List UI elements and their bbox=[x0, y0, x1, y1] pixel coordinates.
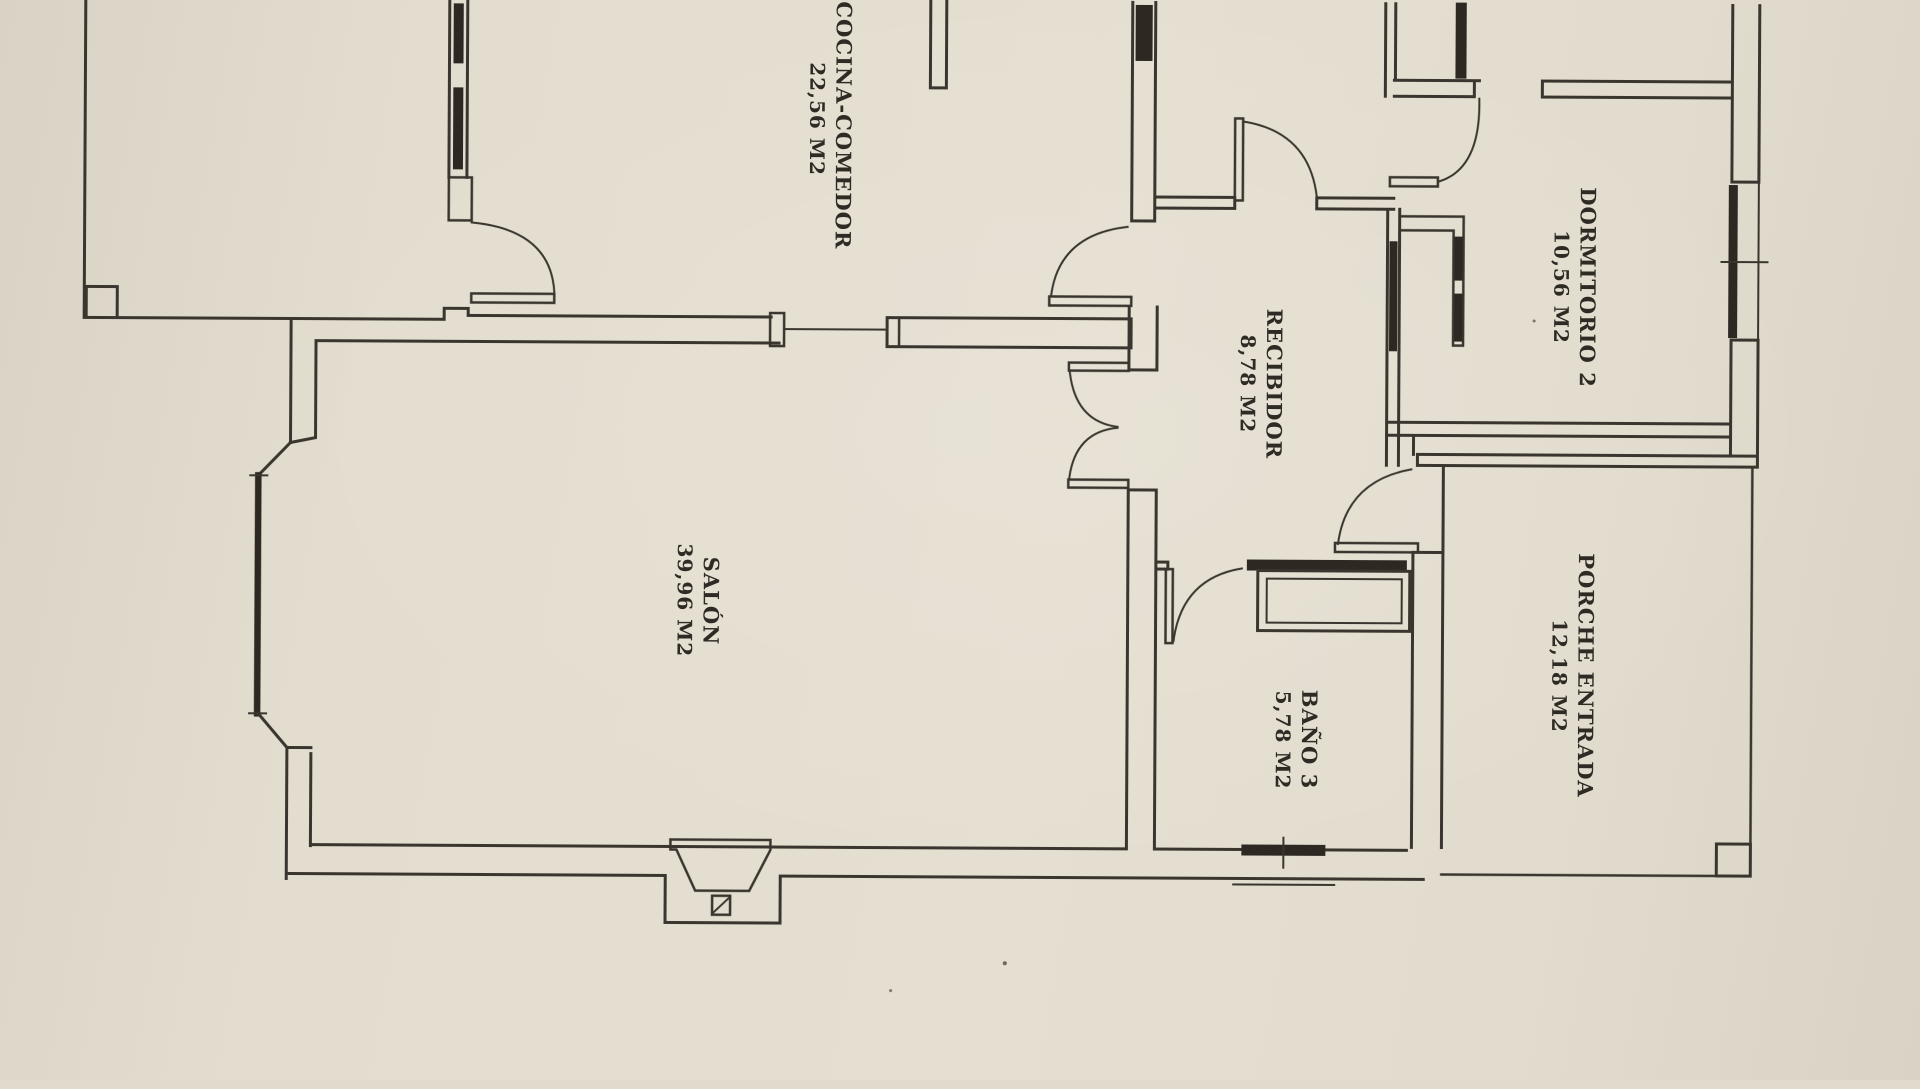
door-leaf bbox=[1390, 177, 1438, 186]
door-leaf bbox=[1235, 118, 1243, 200]
closet-bar bbox=[1454, 237, 1462, 281]
salon-top-wall bbox=[784, 317, 1131, 348]
kitchen-walls bbox=[83, 0, 785, 478]
drain-square-diagonal bbox=[712, 897, 730, 914]
scan-speck bbox=[1003, 961, 1007, 965]
scan-speck bbox=[1533, 319, 1536, 322]
door-swing-arc bbox=[1439, 99, 1480, 182]
room-name: DORMITORIO 2 bbox=[1574, 179, 1602, 395]
salon-bay-window bbox=[248, 475, 312, 878]
wall-footing-square bbox=[1716, 844, 1750, 876]
door-leaf bbox=[1049, 296, 1131, 305]
room-name: BAÑO 3 bbox=[1296, 674, 1324, 806]
window-bar bbox=[453, 87, 463, 169]
door-leaf bbox=[1068, 480, 1128, 488]
recibidor-top-wall bbox=[1155, 118, 1394, 209]
right-outer-wall bbox=[1720, 4, 1768, 467]
center-wall bbox=[1046, 0, 1158, 846]
top-wall-stub bbox=[930, 0, 946, 88]
room-area: 22,56 M2 bbox=[803, 1, 831, 237]
room-area: 8,78 M2 bbox=[1233, 307, 1261, 459]
door-swing-arc bbox=[471, 222, 554, 291]
room-label-porche-entrada: PORCHE ENTRADA 12,18 M2 bbox=[1545, 553, 1600, 798]
door-swing-arc bbox=[1338, 469, 1411, 544]
window-bar bbox=[1389, 241, 1398, 351]
room-label-dormitorio-2: DORMITORIO 2 10,56 M2 bbox=[1547, 179, 1602, 395]
closet bbox=[1399, 216, 1464, 345]
floor-plan: COCINA-COMEDOR 22,56 M2 RECIBIDOR 8,78 M… bbox=[0, 0, 1920, 1085]
sink-counter-inner bbox=[1267, 579, 1402, 624]
door-swing-arc bbox=[1069, 428, 1117, 478]
door-swing-arc bbox=[1173, 568, 1241, 641]
room-name: RECIBIDOR bbox=[1260, 308, 1288, 460]
window-sill bbox=[1233, 884, 1334, 885]
room-name: SALÓN bbox=[697, 517, 725, 685]
room-label-cocina-comedor: COCINA-COMEDOR 22,56 M2 bbox=[803, 1, 858, 237]
door-leaf bbox=[1165, 569, 1172, 643]
door-leaf bbox=[471, 293, 554, 302]
room-label-bano-3: BAÑO 3 5,78 M2 bbox=[1269, 674, 1324, 806]
room-area: 5,78 M2 bbox=[1269, 674, 1297, 806]
window-bar bbox=[453, 3, 463, 63]
window-bar bbox=[1455, 3, 1466, 79]
window-bar bbox=[257, 475, 258, 713]
recibidor-right-wall bbox=[1386, 209, 1463, 465]
door-leaf bbox=[1335, 543, 1418, 552]
closet-bar bbox=[1454, 294, 1462, 342]
room-label-salon: SALÓN 39,96 M2 bbox=[670, 516, 725, 684]
door-swing-arc bbox=[1243, 121, 1317, 196]
floor-plan-drawing bbox=[0, 0, 1920, 1085]
room-area: 12,18 M2 bbox=[1545, 553, 1573, 798]
wall-footing-square bbox=[86, 286, 117, 317]
door-swing-arc bbox=[1070, 373, 1118, 427]
scan-speck bbox=[889, 989, 892, 992]
window-opening bbox=[784, 329, 887, 330]
room-label-recibidor: RECIBIDOR 8,78 M2 bbox=[1233, 307, 1288, 459]
room-name: COCINA-COMEDOR bbox=[830, 1, 858, 237]
window-bar bbox=[1136, 5, 1153, 61]
room-area: 10,56 M2 bbox=[1547, 179, 1575, 395]
door-leaf bbox=[1069, 363, 1129, 371]
door-jamb bbox=[449, 177, 472, 220]
door-swing-arc bbox=[1051, 226, 1127, 294]
room-area: 39,96 M2 bbox=[670, 516, 698, 684]
room-name: PORCHE ENTRADA bbox=[1572, 553, 1600, 798]
